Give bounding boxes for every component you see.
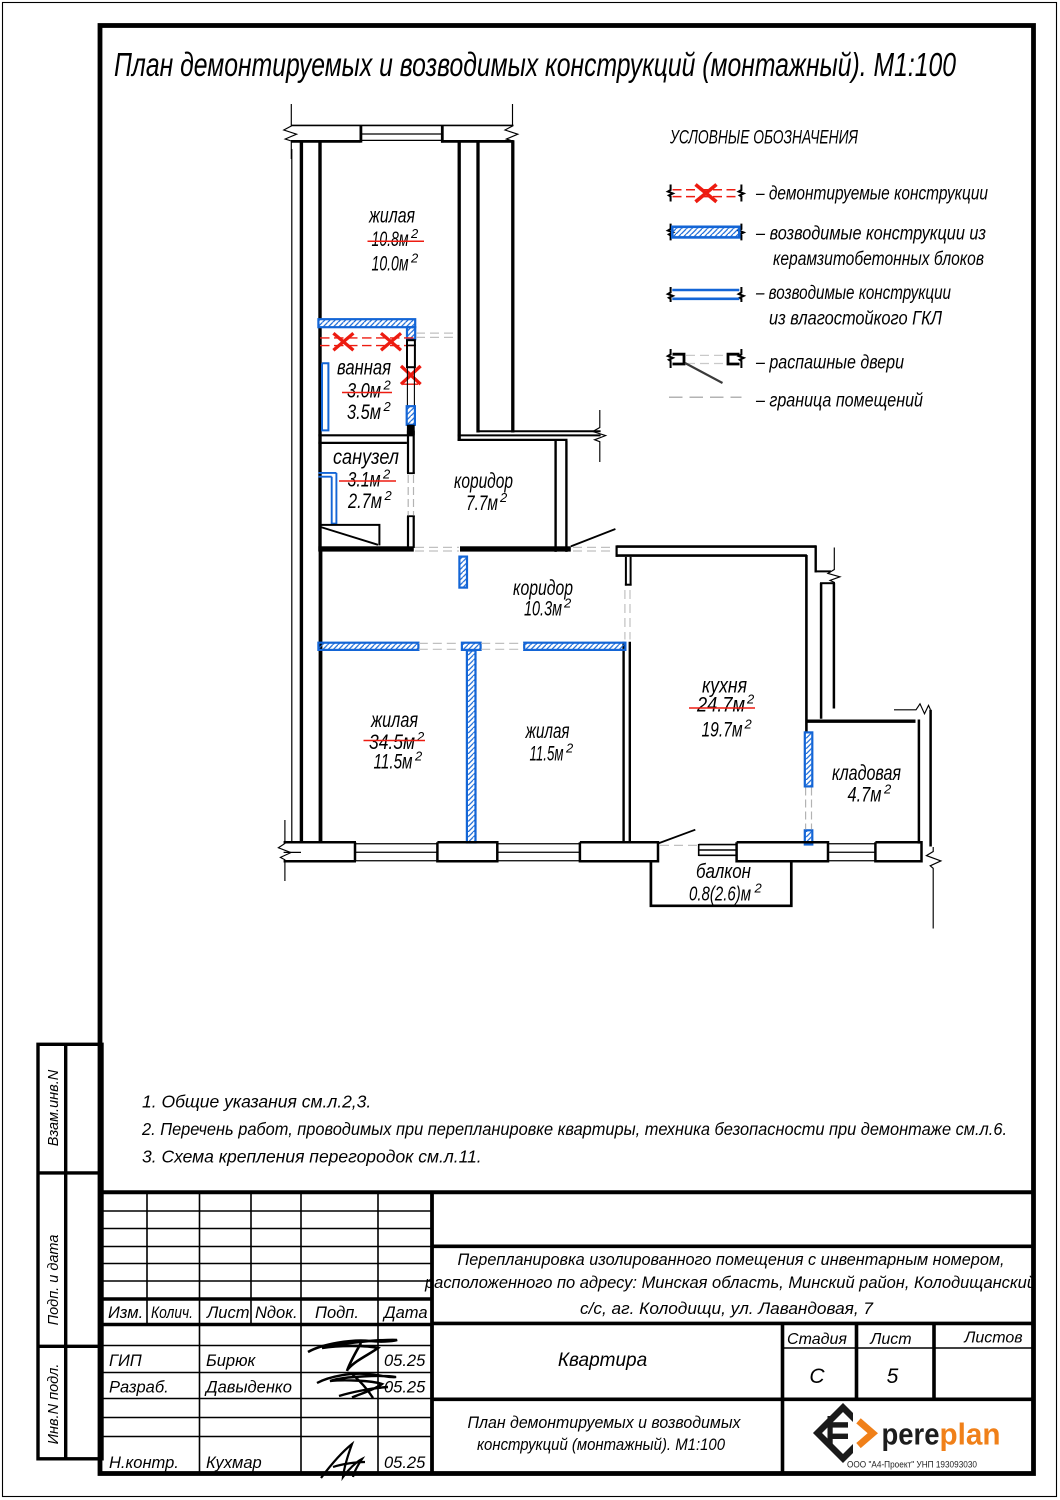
- svg-text:Взам.инв.N: Взам.инв.N: [46, 1069, 62, 1146]
- svg-text:План демонтируемых и возводимы: План демонтируемых и возводимых конструк…: [114, 46, 956, 83]
- svg-text:2: 2: [499, 490, 508, 505]
- svg-text:Разраб.: Разраб.: [109, 1379, 169, 1397]
- svg-text:1. Общие указания см.л.2,3.: 1. Общие указания см.л.2,3.: [142, 1092, 371, 1112]
- svg-text:из влагостойкого ГКЛ: из влагостойкого ГКЛ: [769, 309, 943, 330]
- svg-text:жилая: жилая: [525, 720, 570, 743]
- svg-text:расположенного по адресу: Минс: расположенного по адресу: Минская област…: [424, 1273, 1036, 1292]
- svg-text:10.8м: 10.8м: [372, 228, 409, 251]
- svg-text:2: 2: [744, 717, 753, 732]
- svg-text:УСЛОВНЫЕ ОБОЗНАЧЕНИЯ: УСЛОВНЫЕ ОБОЗНАЧЕНИЯ: [669, 127, 858, 149]
- svg-text:pere: pere: [882, 1418, 940, 1452]
- svg-text:Давыденко: Давыденко: [204, 1379, 292, 1397]
- svg-text:4.7м: 4.7м: [848, 784, 882, 807]
- svg-text:Листов: Листов: [963, 1330, 1022, 1347]
- svg-text:plan: plan: [940, 1418, 1001, 1452]
- svg-text:2: 2: [883, 782, 892, 797]
- svg-text:2: 2: [414, 749, 423, 764]
- svg-text:балкон: балкон: [696, 861, 751, 883]
- svg-text:2: 2: [383, 399, 392, 414]
- svg-text:05.25: 05.25: [384, 1454, 426, 1472]
- svg-text:2: 2: [416, 729, 425, 744]
- svg-text:3.5м: 3.5м: [347, 401, 381, 424]
- svg-text:Бирюк: Бирюк: [206, 1352, 256, 1370]
- svg-text:керамзитобетонных блоков: керамзитобетонных блоков: [773, 249, 984, 270]
- svg-text:3. Схема крепления перегородо: 3. Схема крепления перегородок см.л.11.: [142, 1147, 482, 1167]
- svg-text:Кухмар: Кухмар: [206, 1454, 262, 1472]
- svg-text:Стадия: Стадия: [787, 1331, 847, 1348]
- svg-text:2: 2: [754, 881, 763, 896]
- svg-text:Подп.: Подп.: [315, 1304, 359, 1322]
- svg-text:конструкций (монтажный). М1:10: конструкций (монтажный). М1:100: [477, 1435, 725, 1454]
- svg-text:Подп. и дата: Подп. и дата: [46, 1235, 62, 1326]
- svg-text:2.7м: 2.7м: [347, 490, 382, 513]
- svg-text:– распашные двери: – распашные двери: [755, 353, 904, 374]
- svg-text:Перепланировка изолированного: Перепланировка изолированного помещения …: [458, 1250, 1005, 1269]
- svg-text:3.0м: 3.0м: [347, 380, 381, 403]
- svg-text:2: 2: [563, 596, 572, 611]
- svg-text:7.7м: 7.7м: [466, 492, 498, 515]
- svg-text:Колич.: Колич.: [151, 1304, 193, 1322]
- svg-text:05.25: 05.25: [384, 1379, 426, 1397]
- svg-text:жилая: жилая: [370, 709, 418, 732]
- svg-text:24.7м: 24.7м: [696, 694, 745, 717]
- svg-text:2: 2: [746, 692, 755, 707]
- svg-text:С: С: [809, 1365, 825, 1388]
- svg-text:План демонтируемых и возводимы: План демонтируемых и возводимых: [468, 1413, 741, 1432]
- svg-text:Инв.N подл.: Инв.N подл.: [46, 1364, 62, 1445]
- svg-text:2. Перечень работ, проводимых: 2. Перечень работ, проводимых при перепл…: [141, 1119, 1007, 1139]
- svg-text:2: 2: [565, 741, 574, 756]
- svg-text:– возводимые конструкции из: – возводимые конструкции из: [755, 224, 986, 245]
- svg-text:Квартира: Квартира: [558, 1350, 647, 1371]
- svg-text:Н.контр.: Н.контр.: [109, 1454, 179, 1472]
- svg-text:2: 2: [383, 378, 392, 393]
- svg-text:– возводимые конструкции: – возводимые конструкции: [755, 283, 951, 304]
- svg-text:2: 2: [384, 488, 393, 503]
- svg-text:Изм.: Изм.: [108, 1304, 143, 1322]
- svg-text:0.8(2.6)м: 0.8(2.6)м: [689, 884, 751, 906]
- svg-text:5: 5: [887, 1365, 899, 1388]
- svg-text:10.3м: 10.3м: [524, 598, 562, 621]
- svg-text:2: 2: [382, 467, 391, 482]
- svg-text:с/с, аг. Колодищи, ул. Лавандо: с/с, аг. Колодищи, ул. Лавандовая, 7: [580, 1299, 874, 1318]
- svg-text:Лист: Лист: [869, 1331, 911, 1348]
- svg-text:3.1м: 3.1м: [348, 469, 381, 492]
- svg-text:05.25: 05.25: [384, 1352, 426, 1370]
- svg-text:Дата: Дата: [382, 1304, 428, 1322]
- svg-text:ГИП: ГИП: [109, 1352, 142, 1370]
- svg-text:Лист: Лист: [206, 1304, 249, 1322]
- svg-text:– демонтируемые конструкции: – демонтируемые конструкции: [755, 184, 988, 205]
- svg-text:2: 2: [410, 226, 419, 241]
- svg-text:ООО "А4-Проект" УНП 193093030: ООО "А4-Проект" УНП 193093030: [847, 1460, 977, 1470]
- svg-text:ванная: ванная: [337, 357, 391, 380]
- svg-text:11.5м: 11.5м: [374, 751, 413, 774]
- svg-text:2: 2: [410, 251, 419, 266]
- svg-text:19.7м: 19.7м: [702, 719, 743, 742]
- svg-text:11.5м: 11.5м: [530, 743, 564, 766]
- svg-text:жилая: жилая: [368, 205, 415, 228]
- svg-text:Nдок.: Nдок.: [255, 1304, 298, 1322]
- svg-text:– граница помещений: – граница помещений: [755, 391, 923, 412]
- svg-text:10.0м: 10.0м: [372, 253, 409, 276]
